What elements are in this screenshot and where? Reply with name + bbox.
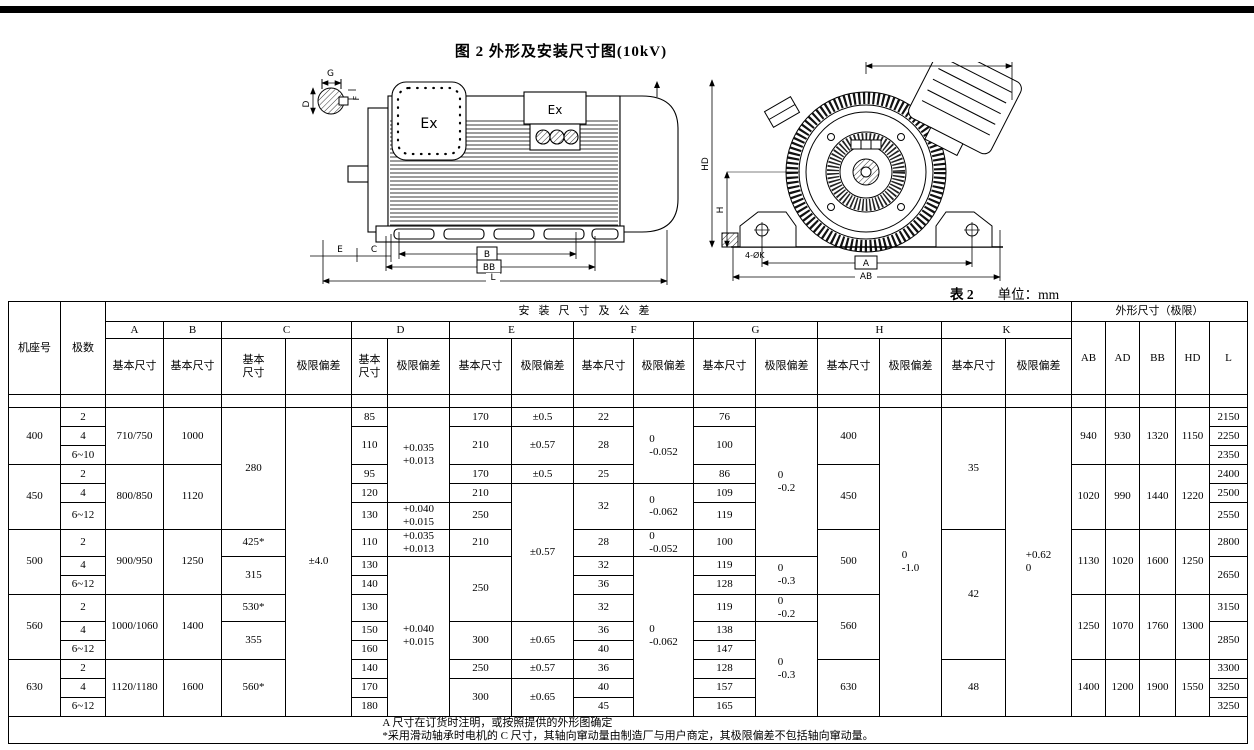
table-cell: +0.035 +0.013 [388, 529, 450, 556]
table-cell: 35 [942, 408, 1006, 530]
table-cell: 40 [574, 640, 634, 659]
table-cell: 1130 [1072, 529, 1106, 594]
table-cell: 2 [61, 594, 106, 621]
table-cell: 170 [450, 465, 512, 484]
table-cell: 800/850 [106, 465, 164, 530]
header-cell: D [352, 322, 450, 339]
table-cell: 2800 [1210, 529, 1248, 556]
table-cell: 157 [694, 678, 756, 697]
table-cell: 基本尺寸 [450, 339, 512, 395]
motor-end-view [722, 62, 1024, 252]
table-cell: 1250 [164, 529, 222, 594]
table-cell: 36 [574, 575, 634, 594]
table-notes: A 尺寸在订货时注明，或按照提供的外形图确定 *采用滑动轴承时电机的 C 尺寸，… [9, 716, 1248, 743]
table-cell: 560* [222, 659, 286, 716]
header-cell: C [222, 322, 352, 339]
table-cell: 1600 [164, 659, 222, 716]
table-cell: 940 [1072, 408, 1106, 465]
table-cell: 630 [818, 659, 880, 716]
header-cell: G [694, 322, 818, 339]
table-cell: 95 [352, 465, 388, 484]
table-cell: 100 [694, 427, 756, 465]
table-cell: 0 -0.052 [634, 408, 694, 484]
table-cell: 180 [352, 697, 388, 716]
table-cell: 1200 [1106, 659, 1140, 716]
table-cell: 450 [818, 465, 880, 530]
table-cell: 425* [222, 529, 286, 556]
table-cell: 0 -0.3 [756, 621, 818, 716]
table-cell [694, 395, 756, 408]
header-cell: B [164, 322, 222, 339]
table-cell: 630 [9, 659, 61, 716]
table-cell: 710/750 [106, 408, 164, 465]
table-cell [1176, 395, 1210, 408]
table-cell [106, 395, 164, 408]
table-cell: 86 [694, 465, 756, 484]
table-cell: 0 -0.2 [756, 594, 818, 621]
table-cell: 28 [574, 529, 634, 556]
table-cell: 6~10 [61, 446, 106, 465]
table-cell: 4 [61, 621, 106, 640]
table-cell: 300 [450, 678, 512, 716]
table-cell: 400 [9, 408, 61, 465]
table-cell [286, 395, 352, 408]
table-cell: 基本尺寸 [574, 339, 634, 395]
table-cell: 4 [61, 484, 106, 503]
table-cell: 1220 [1176, 465, 1210, 530]
table-cell: 3250 [1210, 697, 1248, 716]
table-cell: 1550 [1176, 659, 1210, 716]
table-cell: 32 [574, 556, 634, 575]
table-cell [450, 395, 512, 408]
table-cell: 1900 [1140, 659, 1176, 716]
table-cell: 6~12 [61, 640, 106, 659]
dim-label-bb: BB [483, 263, 495, 273]
table-cell: 极限偏差 [634, 339, 694, 395]
table-cell: 36 [574, 621, 634, 640]
table-cell [222, 395, 286, 408]
table-cell: 138 [694, 621, 756, 640]
table-cell: 0 -0.3 [756, 556, 818, 594]
table-cell: 2 [61, 408, 106, 427]
table-cell: 147 [694, 640, 756, 659]
table-cell: 76 [694, 408, 756, 427]
motor-dimension-drawing: G D F Ex Ex [0, 62, 1254, 294]
table-cell [880, 395, 942, 408]
table-cell: 990 [1106, 465, 1140, 530]
table-cell: 1400 [164, 594, 222, 659]
unit-label: 单位：mm [998, 287, 1060, 302]
table-cell: 119 [694, 503, 756, 530]
header-cell: H [818, 322, 942, 339]
motor-side-view [348, 81, 678, 242]
table-cell: 基本尺寸 [106, 339, 164, 395]
table-cell: 1600 [1140, 529, 1176, 594]
header-cell: 安装尺寸及公差 [106, 302, 1072, 322]
dim-label-4k: 4-ØK [745, 250, 765, 260]
dim-label-hd: HD [701, 157, 711, 171]
table-cell: 4 [61, 678, 106, 697]
table-cell: 1250 [1072, 594, 1106, 659]
table-cell: 130 [352, 503, 388, 530]
table-cell [352, 395, 388, 408]
table-cell: 170 [450, 408, 512, 427]
table-cell: 2850 [1210, 621, 1248, 659]
header-cell: 外形尺寸（极限） [1072, 302, 1248, 322]
table-cell: 1000 [164, 408, 222, 465]
dim-label-f: F [352, 95, 361, 100]
table-cell: 110 [352, 427, 388, 465]
table-cell: ±0.57 [512, 484, 574, 622]
header-cell: 极数 [61, 302, 106, 395]
table-cell: 2500 [1210, 484, 1248, 503]
table-cell: 1120 [164, 465, 222, 530]
table-cell: +0.035 +0.013 [388, 408, 450, 503]
figure-title: 图 2 外形及安装尺寸图(10kV) [0, 40, 1122, 61]
table-cell [634, 395, 694, 408]
table-cell: 3150 [1210, 594, 1248, 621]
table-cell: 210 [450, 529, 512, 556]
table-cell: 36 [574, 659, 634, 678]
table-cell: 45 [574, 697, 634, 716]
table-cell: 85 [352, 408, 388, 427]
dim-label-l: L [490, 273, 495, 283]
table-cell [818, 395, 880, 408]
table-cell: 250 [450, 503, 512, 530]
table-cell: 500 [818, 529, 880, 594]
table-cell: 2250 [1210, 427, 1248, 446]
table-cell: 极限偏差 [880, 339, 942, 395]
table-cell: 2350 [1210, 446, 1248, 465]
table-cell: 930 [1106, 408, 1140, 465]
dimension-table: 机座号极数安装尺寸及公差外形尺寸（极限）ABCDEFGHKABADBBHDL基本… [8, 301, 1248, 744]
table-cell: 6~12 [61, 697, 106, 716]
table-cell: 1250 [1176, 529, 1210, 594]
document-page: { "page": { "figure_title": "图 2 外形及安装尺寸… [0, 0, 1254, 750]
dim-label-e: E [337, 245, 343, 255]
table-cell: +0.040 +0.015 [388, 503, 450, 530]
table-cell: 极限偏差 [512, 339, 574, 395]
table-cell: 2400 [1210, 465, 1248, 484]
header-cell: 机座号 [9, 302, 61, 395]
table-cell: ±0.65 [512, 678, 574, 716]
table-cell [61, 395, 106, 408]
table-cell: 基本尺寸 [694, 339, 756, 395]
dim-label-g: G [327, 69, 334, 79]
table-cell: 极限偏差 [756, 339, 818, 395]
table-cell [1072, 395, 1106, 408]
table-cell: 160 [352, 640, 388, 659]
table-cell: 900/950 [106, 529, 164, 594]
table-cell [574, 395, 634, 408]
table-cell: 42 [942, 529, 1006, 659]
table-cell: 3300 [1210, 659, 1248, 678]
table-cell: 140 [352, 659, 388, 678]
table-cell [1140, 395, 1176, 408]
table-cell: ±4.0 [286, 408, 352, 717]
shaft-section-detail [313, 79, 356, 114]
dim-label-ab: AB [860, 272, 872, 282]
table-cell: 110 [352, 529, 388, 556]
table-cell: ±0.65 [512, 621, 574, 659]
table-cell: 22 [574, 408, 634, 427]
table-cell: 1020 [1106, 529, 1140, 594]
table-cell: 355 [222, 621, 286, 659]
header-cell: F [574, 322, 694, 339]
table-cell: 基本尺寸 [942, 339, 1006, 395]
page-top-rule [0, 6, 1254, 13]
table-cell: 100 [694, 529, 756, 556]
table-cell: 500 [9, 529, 61, 594]
table-cell: 400 [818, 408, 880, 465]
table-cell: 315 [222, 556, 286, 594]
table-cell: +0.040 +0.015 [388, 556, 450, 716]
table-cell: 1120/1180 [106, 659, 164, 716]
header-cell: K [942, 322, 1072, 339]
header-cell: AB [1072, 322, 1106, 395]
table-cell: 40 [574, 678, 634, 697]
table-cell: 530* [222, 594, 286, 621]
table-cell: 28 [574, 427, 634, 465]
table-cell: 1000/1060 [106, 594, 164, 659]
table-cell [388, 395, 450, 408]
table-cell: 128 [694, 659, 756, 678]
table-cell: 1070 [1106, 594, 1140, 659]
table-cell: ±0.57 [512, 659, 574, 678]
table-cell: 120 [352, 484, 388, 503]
table-cell: 25 [574, 465, 634, 484]
table-cell: 2550 [1210, 503, 1248, 530]
header-cell: L [1210, 322, 1248, 395]
table-cell [512, 395, 574, 408]
table-cell: 32 [574, 484, 634, 530]
table-cell [9, 395, 61, 408]
table-cell [1210, 395, 1248, 408]
table-cell: 128 [694, 575, 756, 594]
table-cell: 1020 [1072, 465, 1106, 530]
table-cell: 1300 [1176, 594, 1210, 659]
header-cell: AD [1106, 322, 1140, 395]
table-cell: ±0.5 [512, 408, 574, 427]
ex-marking-1: Ex [420, 116, 437, 132]
table-cell: 基本尺寸 [818, 339, 880, 395]
table-cell: 0 -0.062 [634, 484, 694, 530]
table-cell: 450 [9, 465, 61, 530]
table-cell [942, 395, 1006, 408]
table-cell: +0.62 0 [1006, 408, 1072, 717]
dim-label-a: A [863, 259, 870, 269]
dim-label-h: H [716, 207, 726, 214]
table-cell: 6~12 [61, 503, 106, 530]
table-cell: 130 [352, 556, 388, 575]
table-cell: 1400 [1072, 659, 1106, 716]
table-cell: 2650 [1210, 556, 1248, 594]
table-cell: 250 [450, 556, 512, 621]
table-cell: 极限偏差 [388, 339, 450, 395]
header-cell: HD [1176, 322, 1210, 395]
table-cell: 119 [694, 594, 756, 621]
table-cell: 280 [222, 408, 286, 530]
table-cell: 210 [450, 427, 512, 465]
table-cell: 1320 [1140, 408, 1176, 465]
table-cell: 2150 [1210, 408, 1248, 427]
table-cell: 165 [694, 697, 756, 716]
table-cell: ±0.5 [512, 465, 574, 484]
table-cell: 300 [450, 621, 512, 659]
table-cell: 0 -0.2 [756, 408, 818, 557]
dim-label-c: C [371, 245, 377, 255]
ex-marking-2: Ex [548, 103, 563, 117]
table-cell: 32 [574, 594, 634, 621]
header-cell: BB [1140, 322, 1176, 395]
dim-label-d: D [302, 100, 312, 107]
table-cell: 560 [9, 594, 61, 659]
table-cell: 极限偏差 [286, 339, 352, 395]
table-cell: 250 [450, 659, 512, 678]
table-cell: 0 -0.062 [634, 556, 694, 716]
table-cell: 基本 尺寸 [352, 339, 388, 395]
table-cell: 170 [352, 678, 388, 697]
table-cell [756, 395, 818, 408]
table-cell: 6~12 [61, 575, 106, 594]
dimension-table-body: 机座号极数安装尺寸及公差外形尺寸（极限）ABCDEFGHKABADBBHDL基本… [9, 302, 1248, 744]
table-cell: 560 [818, 594, 880, 659]
table-cell: 150 [352, 621, 388, 640]
table-cell: ±0.57 [512, 427, 574, 465]
table-cell: 0 -0.052 [634, 529, 694, 556]
table-cell: 1150 [1176, 408, 1210, 465]
table-cell: 4 [61, 556, 106, 575]
table-cell [164, 395, 222, 408]
table-cell: 基本 尺寸 [222, 339, 286, 395]
table-cell [1006, 395, 1072, 408]
table-cell: 130 [352, 594, 388, 621]
table-cell: 基本尺寸 [164, 339, 222, 395]
table-cell: 109 [694, 484, 756, 503]
header-cell: E [450, 322, 574, 339]
table-caption: 表 2单位：mm [950, 283, 1059, 303]
table-cell [1106, 395, 1140, 408]
table-cell: 3250 [1210, 678, 1248, 697]
header-cell: A [106, 322, 164, 339]
table-cell: 4 [61, 427, 106, 446]
table-cell: 2 [61, 529, 106, 556]
table-cell: 140 [352, 575, 388, 594]
table-cell: 1760 [1140, 594, 1176, 659]
table-cell: 极限偏差 [1006, 339, 1072, 395]
table-cell: 0 -1.0 [880, 408, 942, 717]
dim-label-b: B [484, 250, 490, 260]
table-cell: 48 [942, 659, 1006, 716]
table-cell: 210 [450, 484, 512, 503]
table-cell: 1440 [1140, 465, 1176, 530]
table-number: 表 2 [950, 287, 974, 302]
table-cell: 2 [61, 659, 106, 678]
table-cell: 119 [694, 556, 756, 575]
table-cell: 2 [61, 465, 106, 484]
